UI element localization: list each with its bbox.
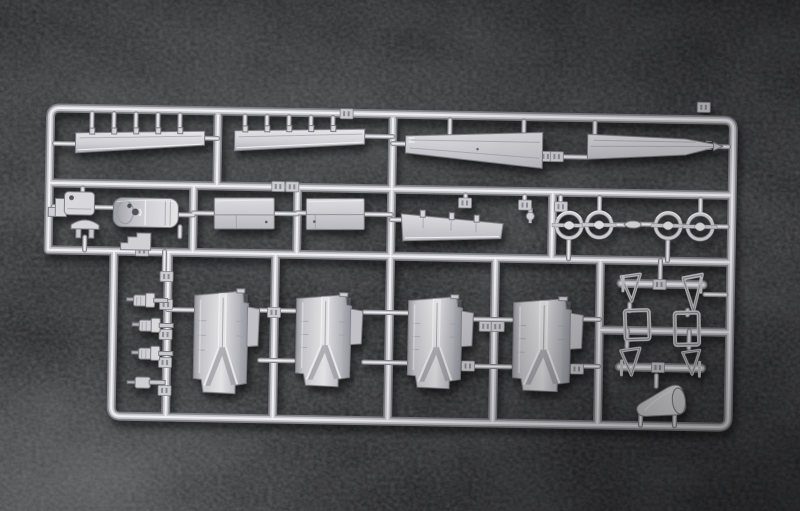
intake-cone [637,384,688,417]
hoop-ring-4 [683,212,718,241]
hinged-plate [64,192,94,216]
step-bracket [121,233,151,251]
hoop-ring-1 [552,211,587,240]
flap-blade-right [234,124,364,153]
cowl-shell-cylinder [113,198,179,228]
wing-panel-right [587,134,722,161]
photo-canvas [0,0,800,511]
nacelle-shell-2 [295,292,363,387]
nacelle-shell-4 [512,296,583,392]
door-panel-2 [306,199,364,230]
nacelle-shell-3 [407,294,474,389]
nacelle-shell-1 [193,288,260,394]
aileron-flap [401,210,504,243]
flap-blade-left [75,126,204,155]
molded-parts [45,120,723,417]
door-panel-1 [214,198,274,229]
hoop-ring-2 [582,210,617,239]
detail-knob [526,212,534,223]
gear-strut-triangle-2 [683,274,703,311]
wing-panel-left [405,130,543,169]
sprue [40,87,746,448]
hoop-ring-3 [651,211,686,240]
spinner-bullet [624,221,641,228]
